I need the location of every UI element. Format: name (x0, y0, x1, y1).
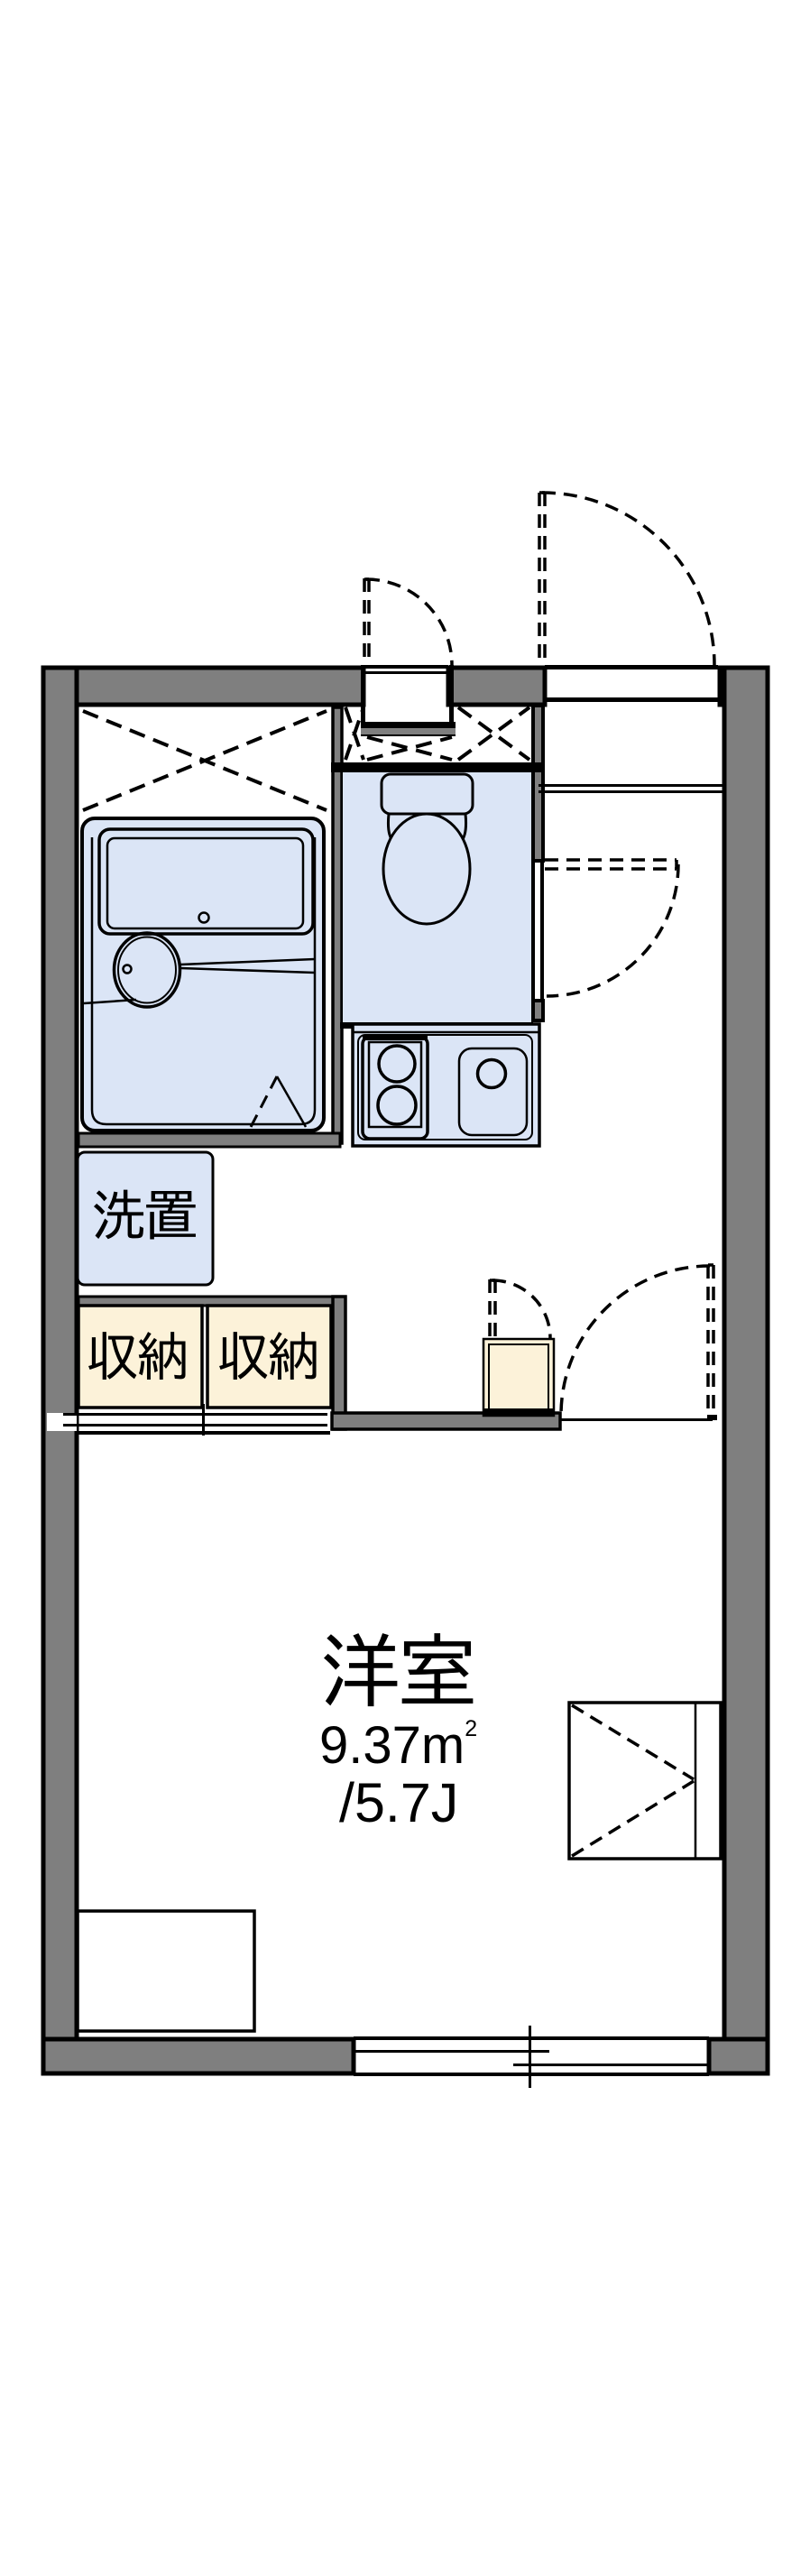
svg-text:/5.7J: /5.7J (339, 1772, 458, 1833)
svg-text:9.37m2: 9.37m2 (319, 1716, 477, 1775)
